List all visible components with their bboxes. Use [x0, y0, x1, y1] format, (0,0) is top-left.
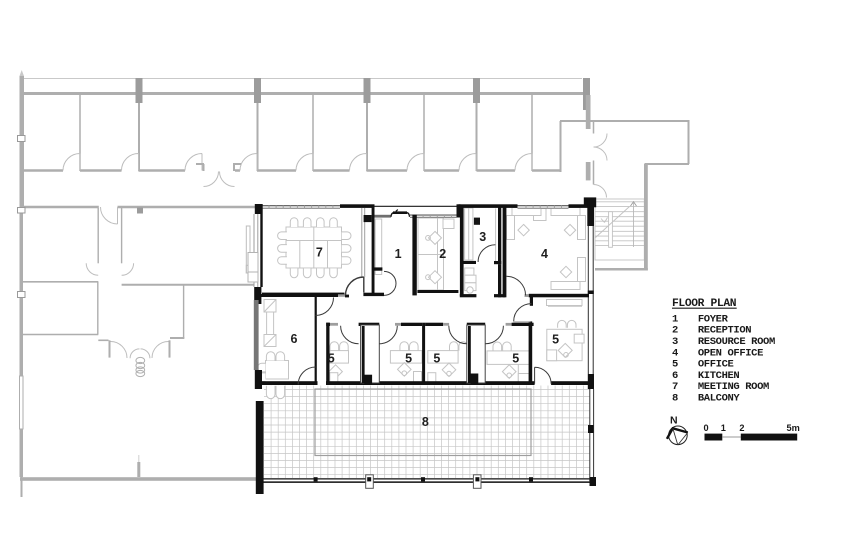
svg-text:1: 1 — [721, 423, 726, 433]
svg-text:7: 7 — [672, 381, 678, 393]
svg-text:OFFICE: OFFICE — [698, 359, 734, 371]
svg-text:5: 5 — [433, 352, 440, 366]
svg-text:6: 6 — [672, 370, 678, 382]
svg-text:3: 3 — [479, 230, 486, 244]
svg-text:1: 1 — [395, 247, 402, 261]
svg-text:BALCONY: BALCONY — [698, 393, 741, 405]
svg-text:5: 5 — [672, 359, 678, 371]
svg-text:0: 0 — [703, 423, 708, 433]
svg-text:8: 8 — [672, 393, 678, 405]
svg-text:1: 1 — [672, 313, 678, 325]
svg-text:5: 5 — [328, 352, 335, 366]
svg-text:7: 7 — [316, 246, 323, 260]
svg-text:FOYER: FOYER — [698, 313, 729, 325]
svg-text:2: 2 — [739, 423, 744, 433]
svg-text:8: 8 — [422, 415, 429, 429]
svg-text:N: N — [670, 415, 678, 427]
svg-text:4: 4 — [672, 347, 678, 359]
svg-text:5: 5 — [405, 352, 412, 366]
svg-text:5: 5 — [552, 333, 559, 347]
svg-text:RECEPTION: RECEPTION — [698, 325, 751, 337]
svg-text:RESOURCE ROOM: RESOURCE ROOM — [698, 336, 775, 348]
svg-text:KITCHEN: KITCHEN — [698, 370, 740, 382]
svg-text:3: 3 — [672, 336, 678, 348]
svg-text:OPEN OFFICE: OPEN OFFICE — [698, 347, 763, 359]
svg-text:4: 4 — [541, 247, 548, 261]
svg-text:2: 2 — [672, 325, 678, 337]
svg-text:5: 5 — [512, 352, 519, 366]
svg-text:6: 6 — [291, 332, 298, 346]
svg-text:5m: 5m — [787, 423, 800, 433]
svg-text:2: 2 — [439, 247, 446, 261]
svg-text:MEETING ROOM: MEETING ROOM — [698, 381, 769, 393]
